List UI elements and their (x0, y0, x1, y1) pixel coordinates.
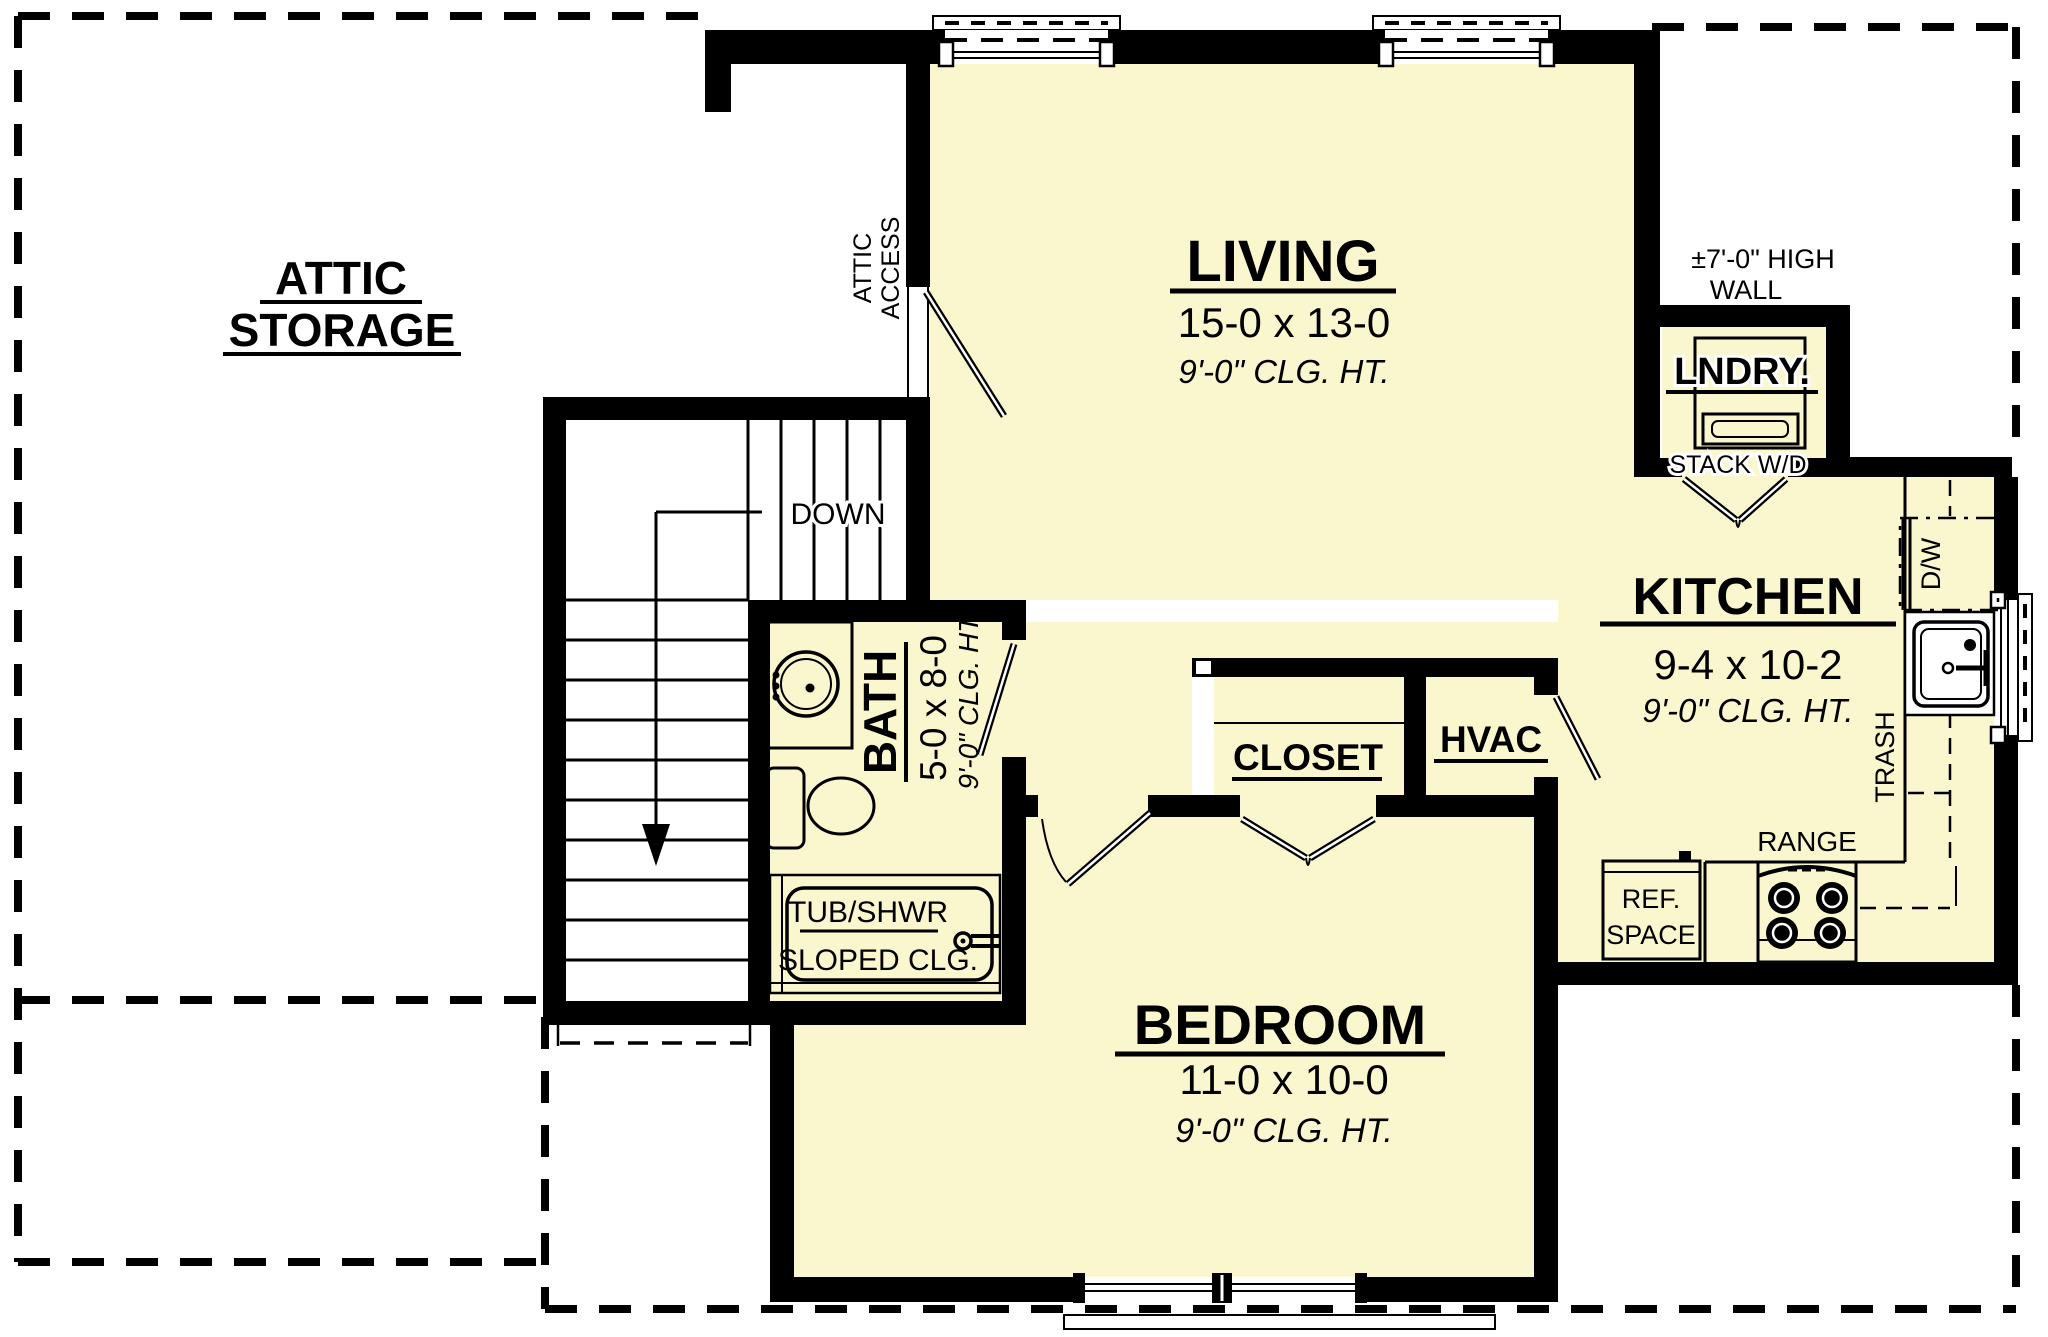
bath-dims-group: 5-0 x 8-0 (913, 635, 954, 781)
high-wall-line1: ±7'-0" HIGH (1691, 244, 1835, 274)
wall-closet-bottom-right (1376, 795, 1538, 817)
wall-stair-left (543, 397, 566, 1025)
dishwasher-label-group: D/W (1916, 537, 1946, 590)
bedroom-dims: 11-0 x 10-0 (1179, 1056, 1388, 1103)
tub-faucet-dot (961, 939, 966, 944)
ref-label-line1: REF. (1622, 884, 1681, 914)
bath-ceiling: 9'-0" CLG. HT. (953, 610, 984, 789)
window-jamb (1540, 42, 1554, 66)
wall-nw-stub (705, 30, 731, 112)
stair-eave-outline (558, 1025, 750, 1046)
window-jamb (1355, 1273, 1367, 1303)
window-sill-trim (1064, 1315, 1495, 1329)
wall-bedroom-north-right (1148, 795, 1192, 817)
down-label: DOWN (791, 498, 886, 531)
bath-ceiling-group: 9'-0" CLG. HT. (953, 610, 984, 789)
attic-access-label-2: ACCESS (877, 217, 905, 320)
laundry-label: LNDRY. (1674, 351, 1810, 393)
living-window-1 (933, 16, 1120, 66)
faucet-dot (773, 683, 780, 690)
living-ceiling: 9'-0" CLG. HT. (1178, 353, 1389, 390)
bedroom-door-opening (1038, 795, 1148, 817)
sloped-clg-label: SLOPED CLG. (778, 944, 978, 977)
range-label: RANGE (1757, 826, 1857, 857)
eave-sides (558, 1025, 750, 1046)
wall-bedroom-west (770, 1001, 794, 1302)
wall-laundry-top (1660, 305, 1850, 327)
closet-door-opening (1240, 795, 1376, 817)
wall-bedroom-south-left (770, 1277, 1085, 1302)
wall-hvac-east-stub (1534, 658, 1558, 695)
kitchen-window (1991, 592, 2032, 743)
living-dims: 15-0 x 13-0 (1178, 299, 1390, 346)
bath-door-opening (1002, 640, 1026, 757)
wall-kitchen-east-lower (1994, 735, 2018, 985)
wall-closet-bottom-left (1192, 795, 1240, 817)
kitchen-ceiling: 9'-0" CLG. HT. (1642, 692, 1853, 729)
wall-bedroom-south-right (1355, 1277, 1558, 1302)
window-jamb (1100, 42, 1114, 66)
window-jamb (1991, 727, 2005, 743)
door-jambs (908, 287, 928, 397)
trash-label-group: TRASH (1870, 711, 1900, 803)
floor-plan-drawing: DOWN TUB/SHWR (0, 0, 2048, 1337)
ref-label-line2: SPACE (1606, 920, 1696, 950)
living-window-2 (1373, 16, 1560, 66)
ref-hinge (1679, 851, 1691, 861)
stair-direction-arrow (642, 512, 762, 866)
burner (1766, 917, 1798, 949)
arrow-head (642, 824, 670, 866)
burner (1814, 917, 1846, 949)
wall-kitchen-north (1826, 457, 2012, 477)
wall-laundry-right (1826, 305, 1850, 477)
window-jamb (1073, 1273, 1085, 1303)
attic-access-line1: ATTIC (849, 233, 877, 303)
bedroom-name: BEDROOM (1134, 993, 1426, 1056)
wall-bath-top (748, 600, 1026, 622)
high-wall-line2: WALL (1710, 275, 1783, 305)
wall-bath-east (1002, 757, 1026, 1025)
closet-label: CLOSET (1233, 737, 1383, 778)
hvac-label: HVAC (1440, 719, 1542, 760)
bath-name: BATH (854, 650, 906, 774)
bath-dims: 5-0 x 8-0 (913, 635, 954, 781)
wall-stair-top (543, 397, 930, 420)
window-opening (1994, 600, 2018, 735)
kitchen-name: KITCHEN (1632, 568, 1863, 626)
wall-living-east (1634, 30, 1660, 477)
tub-label: TUB/SHWR (788, 896, 948, 929)
stack-wd-label: STACK W/D (1669, 451, 1806, 479)
wall-closet-top (1192, 658, 1534, 677)
wall-bedroom-east (1534, 777, 1558, 1302)
living-name: LIVING (1186, 229, 1379, 294)
dishwasher-label: D/W (1916, 537, 1946, 590)
attic-storage-label: ATTIC STORAGE (223, 252, 461, 356)
wall-stair-right (906, 397, 930, 622)
burner (1768, 882, 1800, 914)
attic-access-line2: ACCESS (877, 217, 905, 320)
burner (1816, 882, 1848, 914)
sink-faucet-knob (1964, 639, 1976, 651)
wall-kitchen-south (1558, 962, 2018, 985)
attic-storage-line1: ATTIC (275, 252, 407, 304)
wall-endcap-closet (1196, 661, 1211, 674)
wall-living-west (906, 30, 930, 287)
living-label: LIVING 15-0 x 13-0 9'-0" CLG. HT. (1170, 229, 1396, 390)
bath-name-group: BATH (854, 642, 906, 782)
floor-plan: DOWN TUB/SHWR (0, 0, 2048, 1337)
trash-label: TRASH (1870, 711, 1900, 803)
kitchen-sink (1905, 612, 1994, 715)
bedroom-ceiling: 9'-0" CLG. HT. (1175, 1112, 1393, 1150)
faucet-dot (773, 672, 780, 679)
attic-access-label-1: ATTIC (849, 233, 877, 303)
attic-storage-line2: STORAGE (229, 304, 456, 356)
hall-area (1026, 622, 1192, 795)
bath-sink-drain (806, 684, 815, 693)
high-wall-note: ±7'-0" HIGH WALL (1691, 244, 1835, 305)
kitchen-dims: 9-4 x 10-2 (1653, 641, 1842, 688)
window-jamb (939, 42, 953, 66)
window-jamb (1379, 42, 1393, 66)
faucet-dot (773, 694, 780, 701)
